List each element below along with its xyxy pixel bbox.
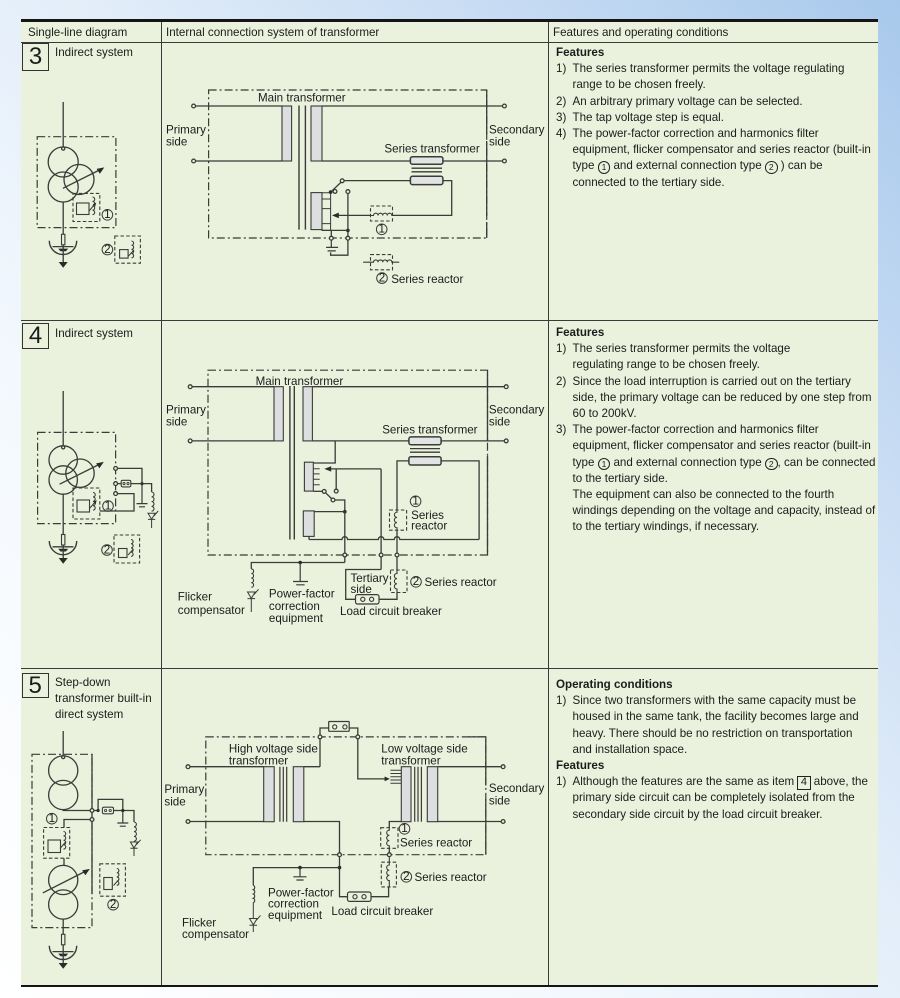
svg-text:2: 2 <box>403 870 409 883</box>
svg-text:equipment: equipment <box>268 909 323 922</box>
svg-text:side: side <box>166 416 187 429</box>
svg-text:Series reactor: Series reactor <box>415 871 487 884</box>
svg-text:Low voltage side: Low voltage side <box>381 742 467 755</box>
svg-text:Main transformer: Main transformer <box>258 92 346 105</box>
svg-text:compensator: compensator <box>182 928 249 941</box>
svg-text:Primary: Primary <box>164 783 204 796</box>
svg-text:Series reactor: Series reactor <box>400 837 472 850</box>
svg-text:2: 2 <box>110 898 116 911</box>
svg-text:Secondary: Secondary <box>489 782 545 795</box>
svg-text:Load circuit breaker: Load circuit breaker <box>331 905 433 918</box>
svg-text:Secondary: Secondary <box>489 403 545 416</box>
svg-text:Flicker: Flicker <box>178 591 212 604</box>
svg-text:side: side <box>164 796 185 809</box>
svg-text:1: 1 <box>401 822 407 835</box>
svg-text:Secondary: Secondary <box>489 123 545 136</box>
svg-text:side: side <box>351 583 372 596</box>
svg-text:2: 2 <box>379 272 385 285</box>
svg-text:side: side <box>166 136 187 149</box>
svg-text:transformer: transformer <box>229 755 288 768</box>
svg-text:Primary: Primary <box>166 123 206 136</box>
svg-text:Main transformer: Main transformer <box>256 375 344 388</box>
svg-text:Series transformer: Series transformer <box>382 424 477 437</box>
svg-text:side: side <box>489 416 510 429</box>
svg-text:1: 1 <box>412 495 418 508</box>
svg-text:compensator: compensator <box>178 604 245 617</box>
svg-text:Series reactor: Series reactor <box>391 273 463 286</box>
svg-text:side: side <box>489 794 510 807</box>
svg-text:side: side <box>489 136 510 149</box>
svg-text:Load circuit breaker: Load circuit breaker <box>340 605 442 618</box>
svg-text:2: 2 <box>104 243 110 256</box>
svg-text:equipment: equipment <box>269 612 324 625</box>
svg-text:High voltage side: High voltage side <box>229 742 318 755</box>
svg-text:2: 2 <box>104 543 110 556</box>
svg-text:Primary: Primary <box>166 403 206 416</box>
svg-text:1: 1 <box>49 812 55 825</box>
svg-text:Power-factor: Power-factor <box>269 588 335 601</box>
svg-text:2: 2 <box>413 575 419 588</box>
svg-text:Series transformer: Series transformer <box>384 142 479 155</box>
svg-text:1: 1 <box>104 208 110 221</box>
svg-text:reactor: reactor <box>411 520 447 533</box>
svg-text:1: 1 <box>105 499 111 512</box>
svg-text:transformer: transformer <box>381 755 440 768</box>
svg-text:Series reactor: Series reactor <box>425 576 497 589</box>
svg-text:1: 1 <box>378 223 384 236</box>
